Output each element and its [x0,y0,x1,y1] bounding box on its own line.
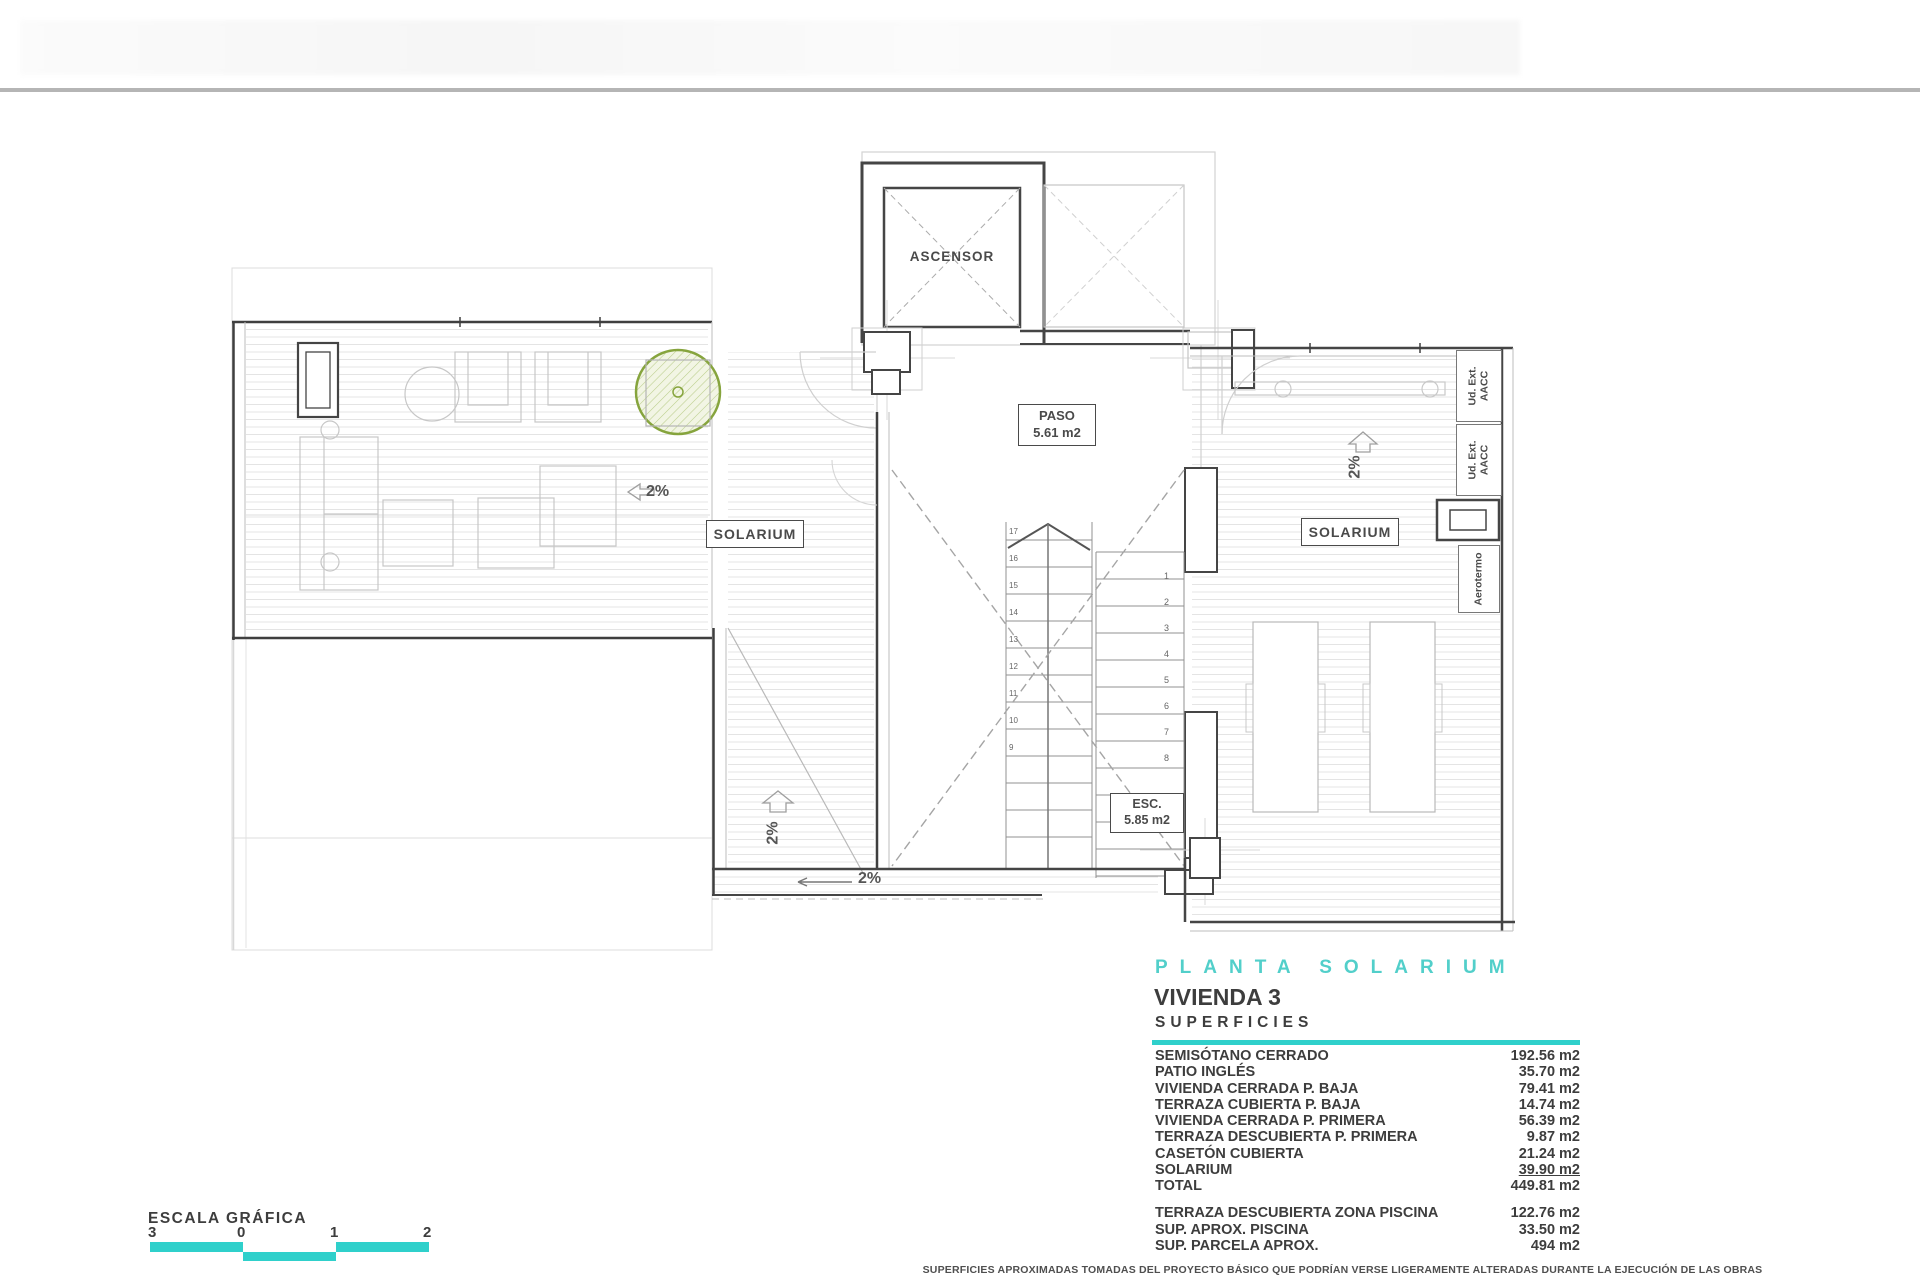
stair-step-number: 9 [1009,743,1025,770]
stair-step-numbers-right: 12345678 [1164,571,1178,779]
surface-row: TERRAZA DESCUBIERTA P. PRIMERA 9.87 m2 [1155,1130,1580,1146]
ac-outdoor-unit-label-2: Ud. Ext. AACC [1456,424,1502,496]
surface-row: SOLARIUM 39.90 m2 [1155,1163,1580,1179]
surface-value: 494 m2 [1490,1239,1580,1256]
ac-outdoor-unit-label-1: Ud. Ext. AACC [1456,350,1502,422]
slope-label-right-solarium: 2% [1347,455,1365,478]
surface-area-table: SEMISÓTANO CERRADO 192.56 m2 PATIO INGLÉ… [1155,1049,1580,1196]
surface-value: 122.76 m2 [1490,1206,1580,1223]
stair-step-number: 1 [1164,571,1178,597]
solarium-label-right: SOLARIUM [1301,518,1399,546]
surface-label: CASETÓN CUBIERTA [1155,1147,1304,1163]
stair-area-label: ESC. 5.85 m2 [1110,793,1184,833]
surface-value: 14.74 m2 [1490,1098,1580,1114]
surface-label: VIVIENDA CERRADA P. BAJA [1155,1082,1358,1098]
surface-label: VIVIENDA CERRADA P. PRIMERA [1155,1114,1386,1130]
surface-label: TERRAZA DESCUBIERTA P. PRIMERA [1155,1130,1418,1146]
stair-step-number: 16 [1009,554,1025,581]
paso-area: 5.61 m2 [1033,425,1081,442]
stair-step-number: 12 [1009,662,1025,689]
slope-label-corridor: 2% [858,870,881,888]
stair-step-number: 3 [1164,623,1178,649]
stair-step-number: 14 [1009,608,1025,635]
paso-title: PASO [1039,408,1075,425]
scale-segment [336,1242,429,1252]
stair-step-number: 5 [1164,675,1178,701]
scale-tick: 2 [423,1224,431,1241]
graphic-scale-ticks: 0123 [148,1224,448,1240]
surface-row: CASETÓN CUBIERTA 21.24 m2 [1155,1147,1580,1163]
surface-row: VIVIENDA CERRADA P. PRIMERA 56.39 m2 [1155,1114,1580,1130]
surface-label: SEMISÓTANO CERRADO [1155,1049,1329,1065]
surface-value: 21.24 m2 [1490,1147,1580,1163]
stair-step-number: 7 [1164,727,1178,753]
surface-value: 56.39 m2 [1490,1114,1580,1130]
stair-step-numbers-left: 17161514131211109 [1009,527,1025,770]
esc-area: 5.85 m2 [1124,813,1170,829]
surface-row: TERRAZA CUBIERTA P. BAJA 14.74 m2 [1155,1098,1580,1114]
paso-area-label: PASO 5.61 m2 [1018,404,1096,446]
graphic-scale: ESCALA GRÁFICA 0123 [148,1210,488,1270]
surface-row: TERRAZA DESCUBIERTA ZONA PISCINA 122.76 … [1155,1206,1580,1223]
aerotermo-text: Aerotermo [1473,552,1485,605]
surface-label: SUP. APROX. PISCINA [1155,1223,1309,1240]
aerotermo-label: Aerotermo [1458,545,1500,613]
stair-step-number: 13 [1009,635,1025,662]
solarium-label-left: SOLARIUM [706,520,804,548]
stair-step-number: 2 [1164,597,1178,623]
surface-row: TOTAL 449.81 m2 [1155,1179,1580,1195]
surface-value: 39.90 m2 [1490,1163,1580,1179]
surface-label: PATIO INGLÉS [1155,1065,1255,1081]
ac-unit-text-1: Ud. Ext. AACC [1467,366,1491,405]
stair-step-number: 15 [1009,581,1025,608]
scale-tick: 1 [330,1224,338,1241]
teal-rule [1152,1040,1580,1045]
stair-step-number: 17 [1009,527,1025,554]
scale-tick: 3 [148,1224,156,1241]
surface-value: 9.87 m2 [1490,1130,1580,1146]
surface-row: VIVIENDA CERRADA P. BAJA 79.41 m2 [1155,1082,1580,1098]
surface-row: PATIO INGLÉS 35.70 m2 [1155,1065,1580,1081]
stair-step-number: 6 [1164,701,1178,727]
disclaimer-text: SUPERFICIES APROXIMADAS TOMADAS DEL PROY… [920,1264,1765,1276]
surface-label: TOTAL [1155,1179,1202,1195]
extra-surface-table: TERRAZA DESCUBIERTA ZONA PISCINA 122.76 … [1155,1206,1580,1256]
surface-row: SUP. APROX. PISCINA 33.50 m2 [1155,1223,1580,1240]
surface-value: 449.81 m2 [1490,1179,1580,1195]
surface-row: SUP. PARCELA APROX. 494 m2 [1155,1239,1580,1256]
stair-step-number: 10 [1009,716,1025,743]
surface-label: SUP. PARCELA APROX. [1155,1239,1319,1256]
surfaces-section-title: SUPERFICIES [1155,1014,1313,1032]
ac-unit-text-2: Ud. Ext. AACC [1467,440,1491,479]
surface-row: SEMISÓTANO CERRADO 192.56 m2 [1155,1049,1580,1065]
dwelling-title: VIVIENDA 3 [1154,984,1281,1011]
scale-segment [150,1242,243,1252]
plan-name-title: PLANTA SOLARIUM [1155,957,1517,979]
slope-label-left-wing: 2% [646,483,669,501]
surface-value: 35.70 m2 [1490,1065,1580,1081]
slope-label-central-strip: 2% [765,821,783,844]
surface-value: 79.41 m2 [1490,1082,1580,1098]
scale-segment [243,1252,336,1262]
stair-step-number: 11 [1009,689,1025,716]
stair-step-number: 8 [1164,753,1178,779]
graphic-scale-bar [148,1242,438,1261]
plan-sheet: ASCENSOR PASO 5.61 m2 ESC. 5.85 m2 SOLAR… [0,0,1920,1280]
surface-value: 33.50 m2 [1490,1223,1580,1240]
esc-title: ESC. [1132,797,1161,813]
floor-plan-linework [0,0,1920,1280]
scale-tick: 0 [237,1224,245,1241]
ascensor-label: ASCENSOR [884,249,1020,264]
surface-label: TERRAZA DESCUBIERTA ZONA PISCINA [1155,1206,1438,1223]
surface-value: 192.56 m2 [1490,1049,1580,1065]
surface-label: SOLARIUM [1155,1163,1232,1179]
surface-label: TERRAZA CUBIERTA P. BAJA [1155,1098,1360,1114]
stair-step-number: 4 [1164,649,1178,675]
